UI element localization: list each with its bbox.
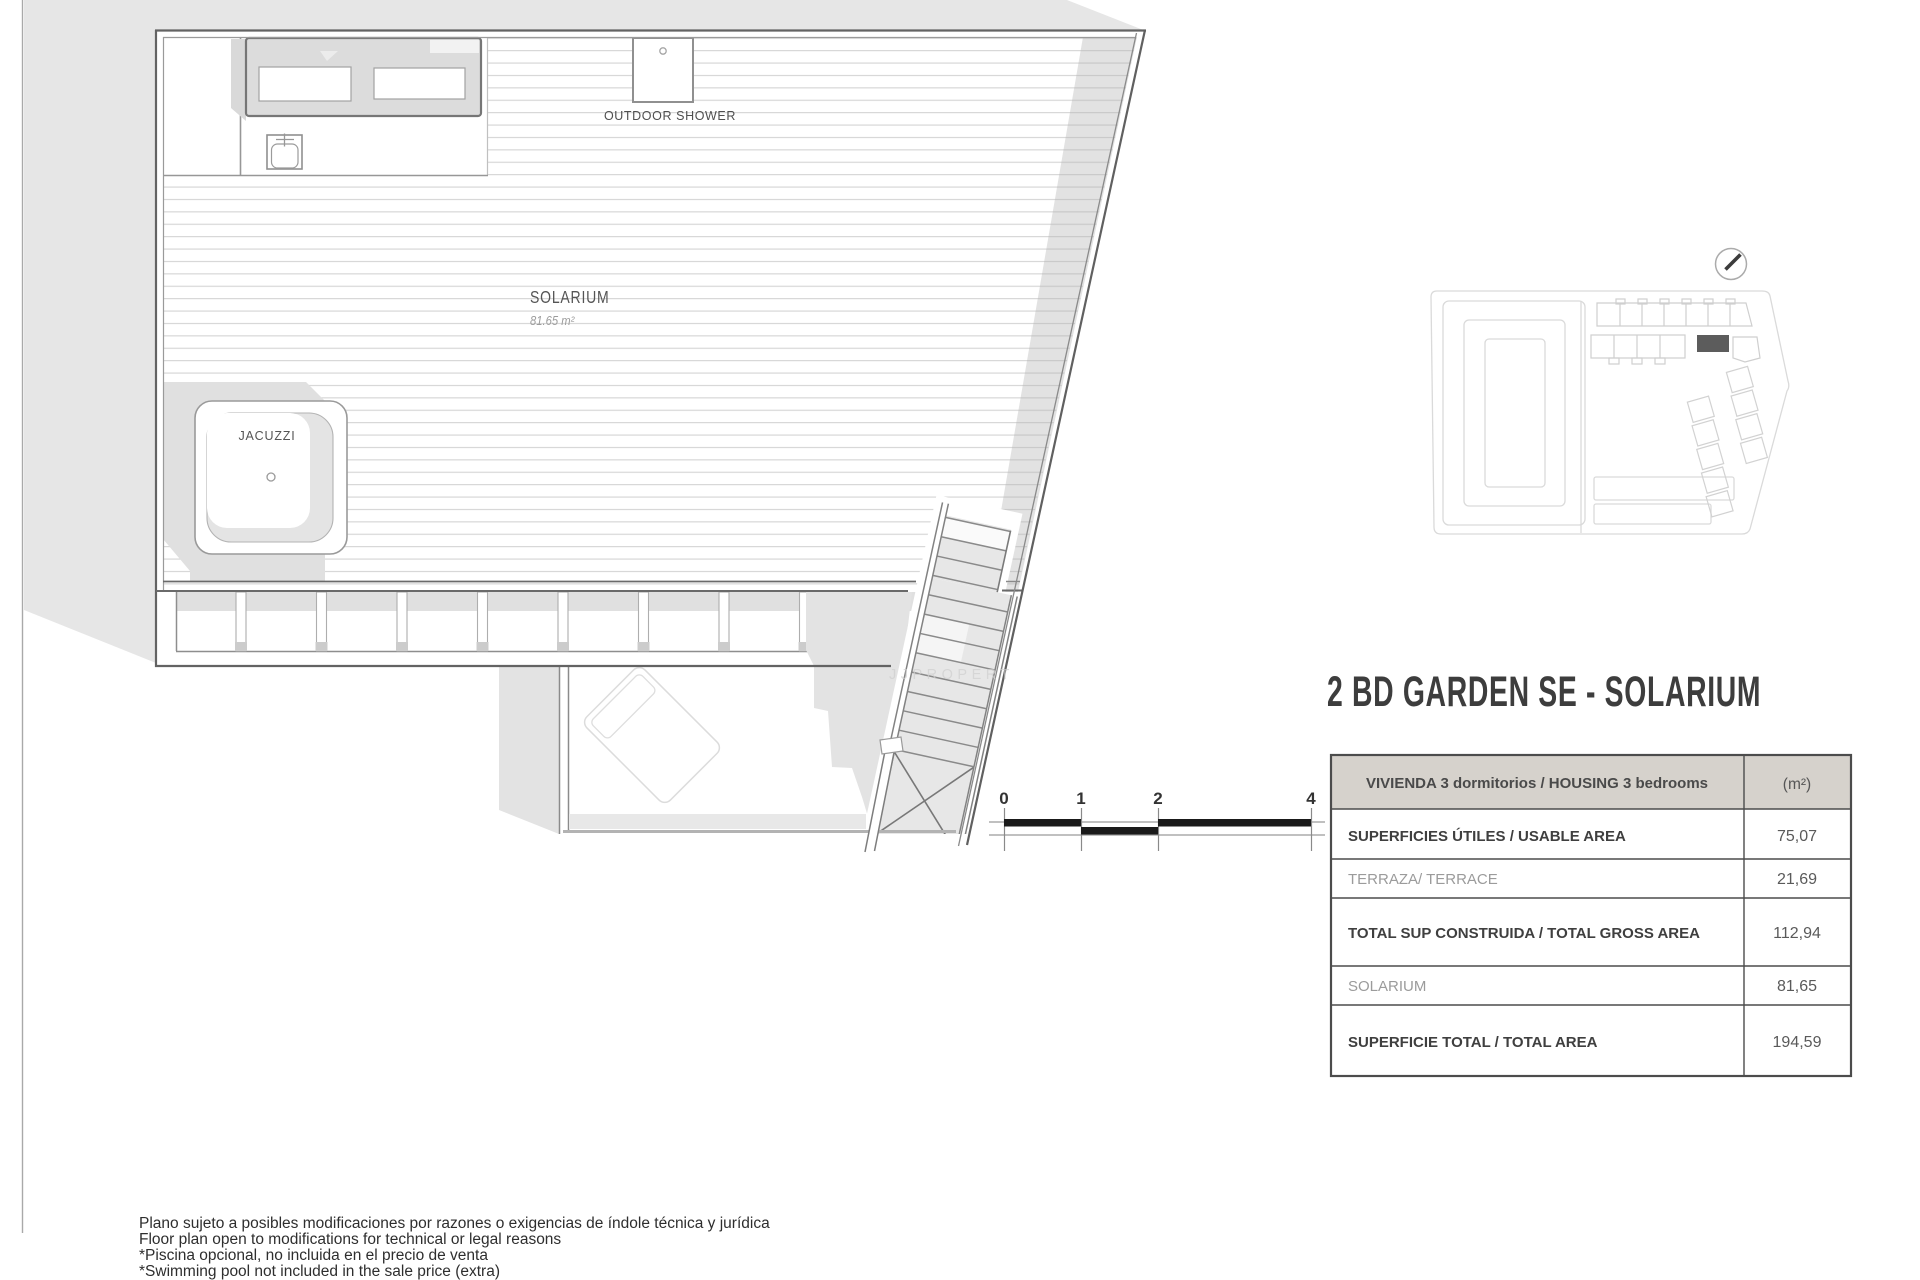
svg-text:194,59: 194,59 [1773, 1034, 1822, 1051]
svg-text:VIVIENDA 3 dormitorios / HOUSI: VIVIENDA 3 dormitorios / HOUSING 3 bedro… [1366, 775, 1708, 792]
svg-text:JACUZZI: JACUZZI [239, 429, 296, 443]
svg-text:4: 4 [1306, 789, 1316, 808]
svg-text:SOLARIUM: SOLARIUM [530, 287, 610, 307]
svg-text:Floor plan open to modificatio: Floor plan open to modifications for tec… [139, 1231, 561, 1248]
svg-text:*Swimming pool not included in: *Swimming pool not included in the sale … [139, 1263, 500, 1280]
svg-text:OUTDOOR SHOWER: OUTDOOR SHOWER [604, 109, 736, 123]
svg-text:(m²): (m²) [1783, 776, 1811, 793]
svg-text:81.65 m²: 81.65 m² [530, 313, 575, 328]
svg-text:*Piscina opcional, no incluida: *Piscina opcional, no incluida en el pre… [139, 1247, 488, 1264]
svg-text:75,07: 75,07 [1777, 828, 1817, 845]
svg-text:JJPROPERT: JJPROPERT [889, 667, 1014, 683]
svg-text:SUPERFICIE TOTAL / TOTAL AREA: SUPERFICIE TOTAL / TOTAL AREA [1348, 1034, 1598, 1051]
svg-text:SUPERFICIES ÚTILES / USABLE AR: SUPERFICIES ÚTILES / USABLE AREA [1348, 827, 1626, 845]
svg-text:21,69: 21,69 [1777, 871, 1817, 888]
svg-text:2: 2 [1153, 789, 1162, 808]
svg-text:TERRAZA/ TERRACE: TERRAZA/ TERRACE [1348, 871, 1498, 888]
svg-text:SOLARIUM: SOLARIUM [1348, 978, 1426, 995]
svg-text:112,94: 112,94 [1773, 925, 1821, 942]
svg-text:TOTAL SUP CONSTRUIDA / TOTAL G: TOTAL SUP CONSTRUIDA / TOTAL GROSS AREA [1348, 925, 1700, 942]
svg-text:81,65: 81,65 [1777, 978, 1817, 995]
svg-text:1: 1 [1076, 789, 1085, 808]
svg-text:Plano sujeto a posibles modifi: Plano sujeto a posibles modificaciones p… [139, 1215, 770, 1232]
svg-text:2 BD GARDEN SE - SOLARIUM: 2 BD GARDEN SE - SOLARIUM [1327, 667, 1761, 715]
svg-text:0: 0 [999, 789, 1008, 808]
